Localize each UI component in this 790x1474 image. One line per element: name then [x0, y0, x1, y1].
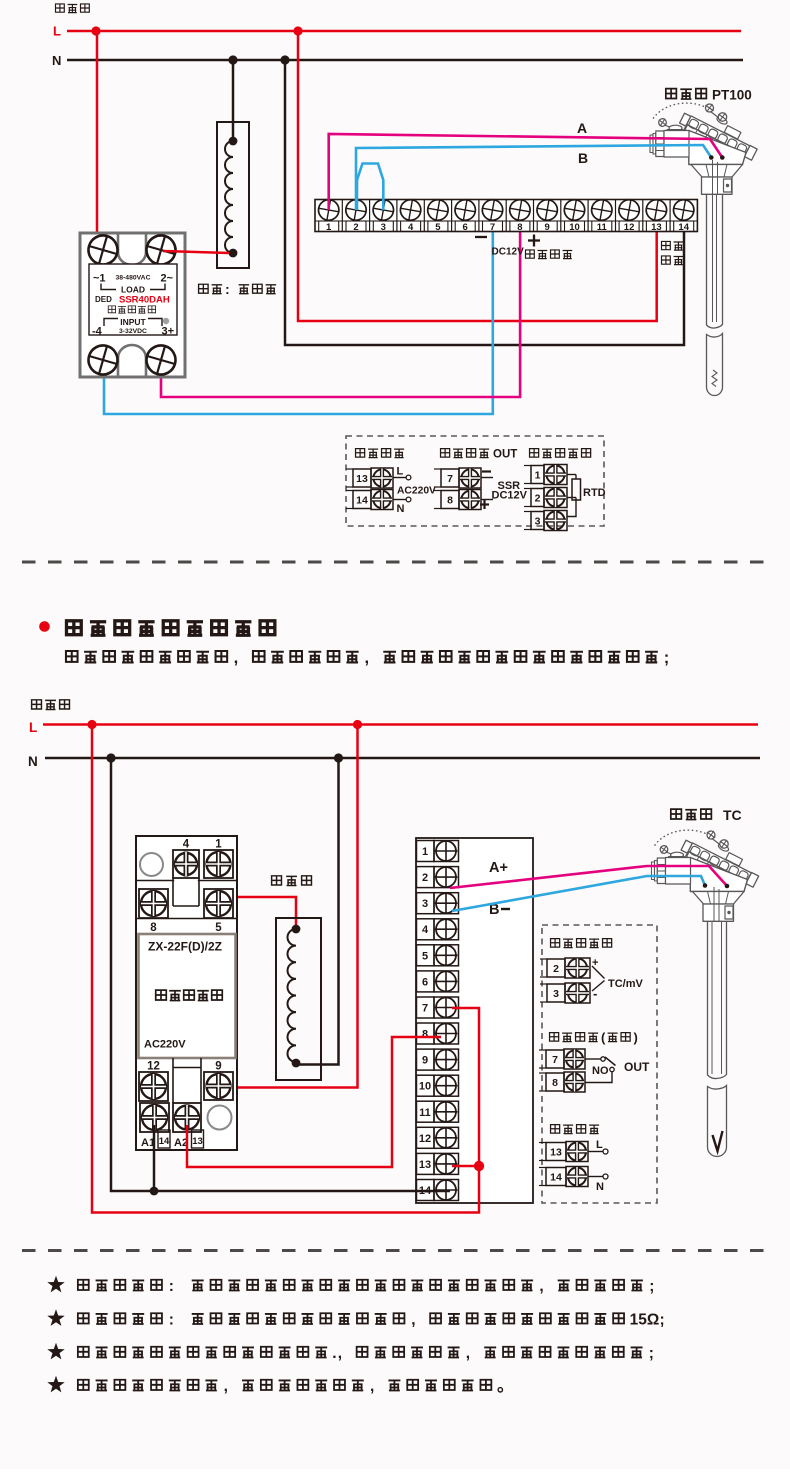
svg-text:14: 14 [159, 1136, 170, 1147]
svg-text:;: ; [660, 1312, 665, 1329]
svg-text:;: ; [649, 1345, 654, 1362]
svg-text:,: , [370, 1378, 374, 1395]
svg-text:AC220V: AC220V [397, 486, 436, 497]
svg-text:RTD: RTD [583, 487, 606, 499]
svg-text:A: A [577, 120, 587, 136]
svg-text:11: 11 [597, 222, 608, 233]
svg-text:,: , [365, 649, 370, 667]
svg-text:14: 14 [550, 1172, 562, 1184]
svg-text:TC: TC [723, 807, 742, 823]
svg-text:8: 8 [517, 222, 522, 233]
svg-text:DC12V: DC12V [492, 247, 525, 258]
svg-text:L: L [596, 1139, 603, 1151]
svg-text:13: 13 [192, 1136, 203, 1147]
svg-text:5: 5 [435, 222, 441, 233]
svg-text:1: 1 [215, 839, 222, 851]
svg-text:6: 6 [463, 222, 468, 233]
svg-text:PT100: PT100 [712, 88, 752, 103]
svg-text:2~: 2~ [160, 273, 173, 285]
svg-text:13: 13 [356, 473, 368, 485]
svg-text:3+: 3+ [161, 326, 174, 338]
svg-text:12: 12 [419, 1133, 431, 1145]
svg-text:9: 9 [215, 1061, 221, 1073]
svg-text:OUT: OUT [493, 449, 517, 461]
svg-text:L: L [53, 24, 61, 39]
svg-text:DED: DED [95, 295, 112, 304]
svg-text::: : [225, 282, 230, 297]
svg-text:~1: ~1 [93, 273, 106, 285]
svg-text:-4: -4 [92, 326, 103, 338]
svg-text:38-480VAC: 38-480VAC [115, 275, 150, 282]
svg-text:AC220V: AC220V [144, 1039, 186, 1051]
svg-text:14: 14 [356, 495, 368, 507]
svg-text:B: B [578, 150, 588, 166]
svg-text:;: ; [649, 1278, 654, 1295]
svg-text:2: 2 [422, 872, 428, 884]
svg-text:N: N [596, 1181, 604, 1193]
svg-text::: : [169, 1312, 174, 1329]
svg-text:9: 9 [545, 222, 550, 233]
svg-text:13: 13 [419, 1159, 431, 1171]
svg-text:13: 13 [651, 222, 662, 233]
svg-text:NO: NO [592, 1065, 609, 1077]
svg-text:,: , [338, 1345, 342, 1362]
svg-text:,: , [466, 1345, 470, 1362]
svg-text:2: 2 [553, 963, 559, 975]
svg-text:10: 10 [569, 222, 580, 233]
svg-text:): ) [634, 1030, 638, 1045]
svg-text:1: 1 [326, 222, 332, 233]
svg-text:,: , [224, 1378, 228, 1395]
svg-text:5: 5 [422, 950, 428, 962]
svg-text:TC/mV: TC/mV [608, 978, 644, 990]
svg-text:,: , [539, 1278, 543, 1295]
svg-text:3: 3 [422, 898, 428, 910]
svg-text:.: . [332, 1345, 336, 1362]
svg-text:DC12V: DC12V [492, 490, 528, 502]
svg-text:4: 4 [422, 924, 429, 936]
svg-text:7: 7 [447, 473, 453, 485]
svg-text:10: 10 [419, 1081, 431, 1093]
svg-text:4: 4 [183, 839, 190, 851]
svg-text:9: 9 [422, 1055, 428, 1067]
svg-text:7: 7 [552, 1054, 558, 1066]
svg-text:SSR40DAH: SSR40DAH [119, 295, 170, 306]
svg-text:OUT: OUT [624, 1060, 650, 1074]
svg-text:12: 12 [147, 1061, 160, 1073]
svg-text:5: 5 [215, 922, 222, 934]
svg-text:7: 7 [490, 222, 495, 233]
svg-text:12: 12 [624, 222, 635, 233]
svg-text:2: 2 [535, 493, 541, 505]
svg-text:3: 3 [535, 516, 541, 528]
svg-text:1: 1 [535, 470, 541, 482]
svg-text:13: 13 [550, 1147, 562, 1159]
svg-text:3: 3 [553, 988, 559, 1000]
svg-text:N: N [52, 53, 61, 68]
svg-text:,: , [411, 1312, 415, 1329]
svg-text:14: 14 [678, 222, 689, 233]
svg-text:N: N [397, 503, 405, 515]
svg-text:A+: A+ [489, 860, 508, 876]
svg-text:;: ; [664, 649, 670, 667]
svg-text:4: 4 [408, 222, 414, 233]
svg-text:N: N [28, 754, 38, 769]
svg-text:ZX-22F(D)/2Z: ZX-22F(D)/2Z [148, 940, 222, 954]
svg-text:2: 2 [353, 222, 358, 233]
svg-text:,: , [234, 649, 239, 667]
svg-text:8: 8 [552, 1077, 558, 1089]
svg-text:11: 11 [419, 1107, 431, 1119]
svg-text::: : [169, 1278, 174, 1295]
svg-text:15Ω: 15Ω [630, 1312, 660, 1329]
svg-text:(: ( [601, 1030, 606, 1045]
svg-text:3-32VDC: 3-32VDC [119, 328, 147, 335]
svg-text:1: 1 [422, 846, 428, 858]
svg-text:8: 8 [150, 922, 157, 934]
svg-text:L: L [397, 466, 404, 478]
svg-text:8: 8 [447, 495, 453, 507]
svg-text:LOAD: LOAD [121, 285, 145, 295]
svg-text:6: 6 [422, 976, 428, 988]
svg-text:L: L [29, 720, 37, 735]
svg-text:8: 8 [422, 1029, 428, 1041]
svg-text:3: 3 [381, 222, 386, 233]
svg-text:7: 7 [422, 1003, 428, 1015]
svg-text:INPUT: INPUT [120, 317, 146, 327]
